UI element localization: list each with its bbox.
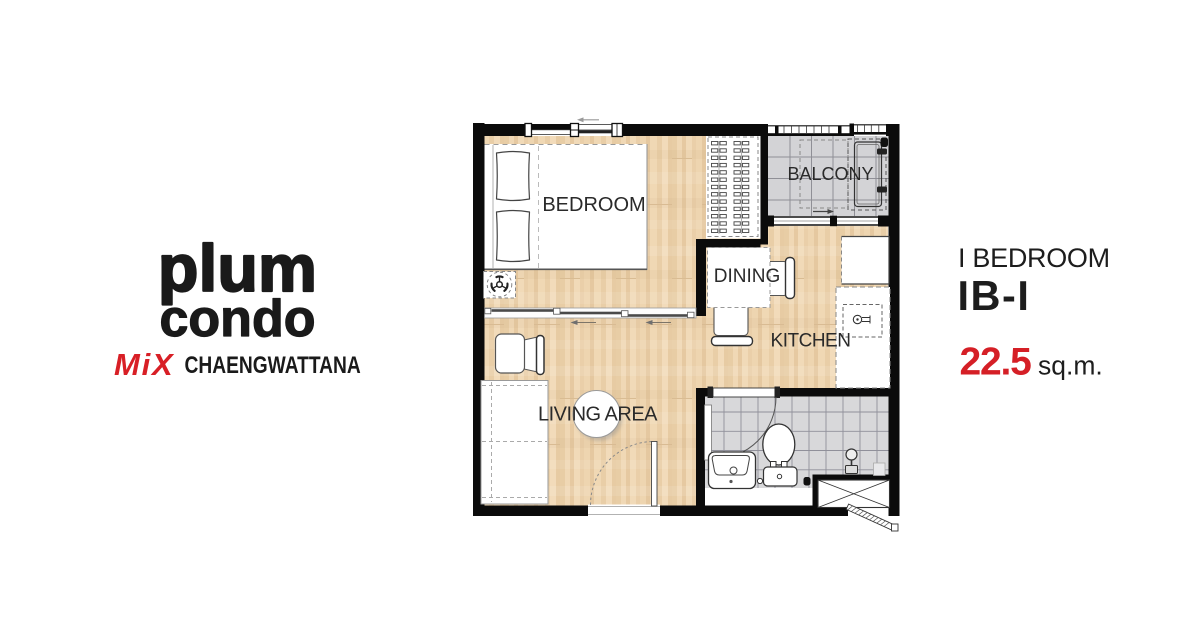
svg-text:condo: condo: [160, 290, 316, 348]
svg-text:I BEDROOM: I BEDROOM: [958, 243, 1110, 273]
svg-text:CHAENGWATTANA: CHAENGWATTANA: [185, 351, 361, 379]
svg-text:BALCONY: BALCONY: [787, 164, 873, 184]
svg-text:LIVING AREA: LIVING AREA: [538, 404, 658, 426]
svg-text:BEDROOM: BEDROOM: [542, 194, 645, 216]
svg-text:MiX: MiX: [114, 347, 175, 382]
svg-text:KITCHEN: KITCHEN: [771, 331, 851, 352]
svg-text:sq.m.: sq.m.: [1038, 351, 1103, 381]
svg-text:DINING: DINING: [714, 266, 781, 287]
svg-text:IB-I: IB-I: [958, 272, 1031, 319]
svg-text:22.5: 22.5: [960, 341, 1032, 384]
